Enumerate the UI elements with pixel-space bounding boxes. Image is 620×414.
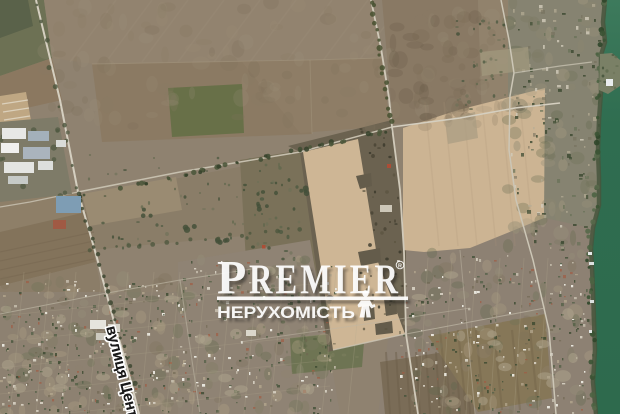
svg-text:НЕРУХОМІСТЬ: НЕРУХОМІСТЬ: [217, 303, 355, 322]
svg-text:R: R: [398, 264, 402, 270]
